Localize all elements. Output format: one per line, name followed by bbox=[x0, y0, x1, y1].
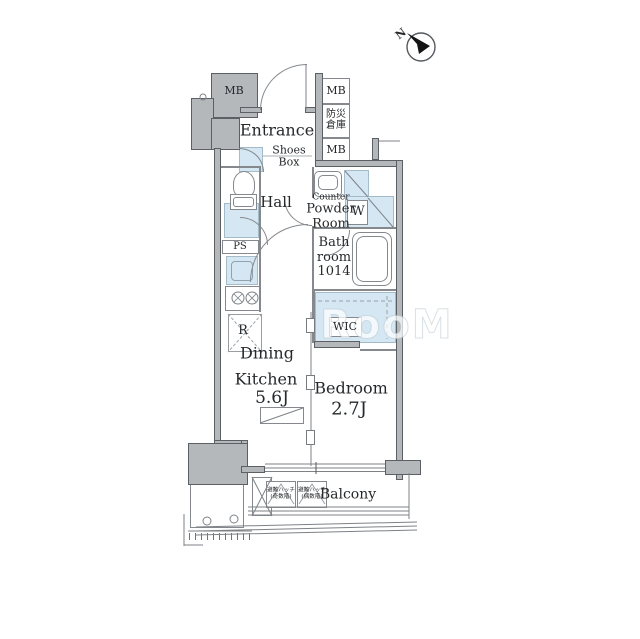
meter-box-right-bottom-label: MB bbox=[326, 144, 345, 156]
bathroom-label: Bath room 1014 bbox=[317, 236, 351, 280]
partition-wall bbox=[312, 291, 315, 343]
wall-segment bbox=[241, 466, 265, 473]
partition-wall bbox=[314, 289, 396, 291]
powder-sink-inner bbox=[318, 175, 338, 190]
wall-segment bbox=[385, 460, 421, 475]
closet-front-line bbox=[360, 349, 396, 351]
evacuation-hatch-2-label: 避難ハッチ (偶数階) bbox=[298, 488, 326, 501]
disaster-storage-label: 防災 倉庫 bbox=[326, 109, 346, 131]
dining-label: Dining bbox=[240, 346, 294, 363]
wall-segment bbox=[188, 443, 248, 485]
pipe-space-label: PS bbox=[233, 242, 247, 253]
refrigerator-label: R bbox=[238, 324, 248, 338]
compass-north-label: N bbox=[393, 26, 408, 41]
balcony-label: Balcony bbox=[320, 488, 376, 503]
washer-label: W bbox=[351, 205, 364, 219]
ground-hatching bbox=[189, 533, 251, 540]
kitchen-label: Kitchen bbox=[235, 372, 298, 389]
entrance-door-arc bbox=[260, 64, 307, 110]
floor-plan: RooM N MB MB 防災 倉庫 MB Entrance Shoes Box… bbox=[0, 0, 640, 639]
entrance-label: Entrance bbox=[240, 123, 314, 140]
bathtub-inner bbox=[356, 236, 388, 282]
hall-label: Hall bbox=[260, 195, 292, 211]
evacuation-hatch-1-label: 避難ハッチ (奇数階) bbox=[267, 488, 295, 501]
wall-segment bbox=[315, 73, 323, 166]
sliding-door-panel bbox=[306, 430, 315, 445]
dk-size-label: 5.6J bbox=[255, 390, 289, 408]
shoes-box-label: Shoes Box bbox=[272, 145, 305, 170]
compass-icon bbox=[407, 33, 435, 61]
toilet-tank-inner bbox=[233, 197, 254, 207]
kitchen-counter bbox=[260, 407, 304, 424]
wic-label: WIC bbox=[333, 321, 357, 333]
stove bbox=[225, 286, 261, 311]
wall-segment bbox=[372, 138, 379, 160]
wall-segment bbox=[211, 118, 240, 150]
wall-segment bbox=[214, 148, 221, 443]
powder-room-label: Counter Powder Room bbox=[306, 192, 355, 231]
bedroom-size-label: 2.7J bbox=[331, 401, 367, 420]
service-box bbox=[190, 483, 244, 528]
bedroom-label: Bedroom bbox=[314, 381, 388, 398]
sliding-door-panel bbox=[306, 318, 315, 333]
meter-box-right-top-label: MB bbox=[326, 85, 345, 97]
wall-segment bbox=[315, 160, 403, 167]
meter-box-topleft-label: MB bbox=[224, 85, 243, 97]
wall-segment bbox=[240, 107, 262, 113]
